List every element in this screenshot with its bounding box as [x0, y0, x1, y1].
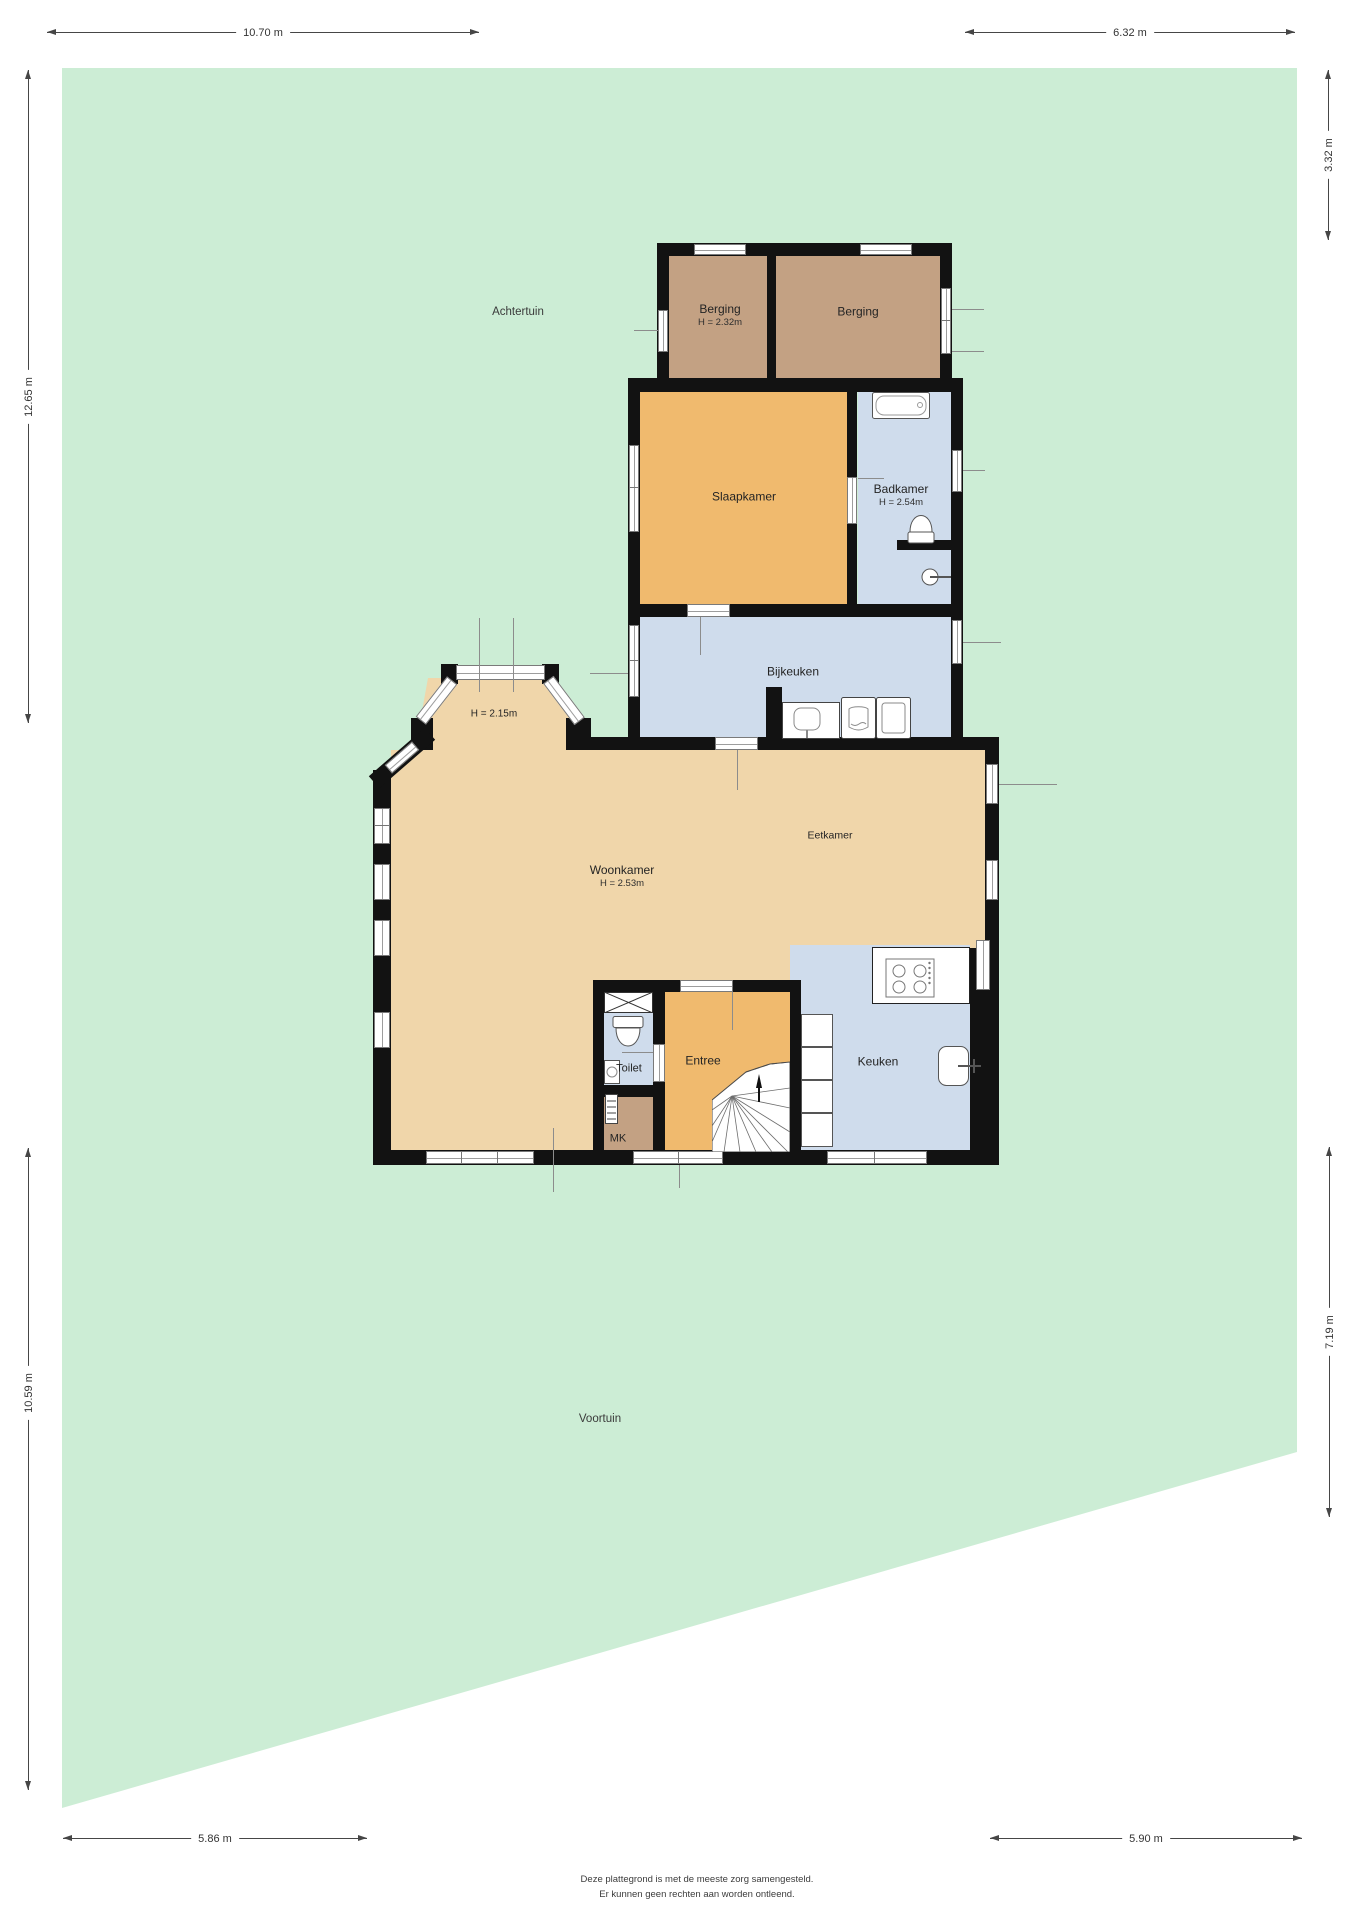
woonkamer-window: [426, 1151, 534, 1164]
room-name: MK: [610, 1133, 627, 1145]
dimension-bottom-right: 5.90 m: [990, 1838, 1302, 1839]
window-tick: [513, 618, 514, 692]
shower-icon: [918, 566, 952, 588]
erker-height-label: H = 2.15m: [471, 708, 517, 721]
window-tick: [553, 1128, 554, 1192]
room-height: H = 2.32m: [698, 316, 742, 329]
door-leaf: [732, 992, 733, 1030]
dimension-bottom-left: 5.86 m: [63, 1838, 367, 1839]
berging-window: [658, 310, 668, 352]
room-name: Slaapkamer: [712, 490, 776, 504]
keuken-window: [827, 1151, 927, 1164]
door-tick: [679, 1165, 680, 1188]
berging-door: [694, 244, 746, 255]
kitchen-cabinet: [801, 1014, 833, 1047]
bijkeuken-label: Bijkeuken: [767, 666, 819, 679]
berging-door: [860, 244, 912, 255]
woonkamer-window: [374, 808, 390, 844]
toilet-door: [653, 1044, 665, 1082]
dimension-value: 12.65 m: [23, 370, 35, 424]
floorplan-page: Achtertuin Voortuin: [0, 0, 1358, 1920]
window-mullion: [497, 1152, 498, 1163]
window-tick: [952, 351, 984, 352]
badkamer-label: Badkamer H = 2.54m: [874, 483, 929, 509]
woonkamer-label: Woonkamer H = 2.53m: [590, 864, 654, 890]
staircase: [712, 1060, 790, 1152]
woonkamer-entree-door: [680, 980, 733, 992]
scullery-sink-icon: [782, 702, 840, 739]
woonkamer-window: [374, 864, 390, 900]
backyard-label: Achtertuin: [492, 306, 544, 318]
room-name: Keuken: [858, 1055, 899, 1069]
woonkamer-window: [374, 920, 390, 956]
dimension-right-upper: 3.32 m: [1328, 70, 1329, 240]
slaapkamer-label: Slaapkamer: [712, 491, 776, 504]
window-mullion: [941, 320, 951, 321]
window-mullion: [874, 1152, 875, 1163]
berging-right-label: Berging: [837, 306, 878, 319]
door-leaf: [858, 478, 884, 479]
wall: [653, 1085, 665, 1150]
kitchen-cabinet: [801, 1047, 833, 1080]
room-height: H = 2.15m: [471, 709, 517, 720]
duct-icon: [604, 992, 653, 1013]
meter-panel-icon: [605, 1094, 618, 1124]
bijkeuken-window: [952, 620, 962, 664]
badkamer-door: [847, 477, 857, 524]
dryer-icon: [876, 697, 911, 739]
room-name: Bijkeuken: [767, 665, 819, 679]
toilet-icon: [906, 504, 936, 546]
cooktop-counter-icon: [872, 947, 970, 1004]
window-mullion: [461, 1152, 462, 1163]
toilet-label: Toilet: [616, 1063, 642, 1076]
room-name: Berging: [837, 305, 878, 319]
entree-label: Entree: [685, 1055, 720, 1068]
wall: [951, 378, 963, 618]
berging-window: [941, 288, 951, 354]
room-name: Toilet: [616, 1063, 642, 1075]
dimension-top-right: 6.32 m: [965, 32, 1295, 33]
dimension-left-upper: 12.65 m: [28, 70, 29, 723]
woonkamer-window: [374, 1012, 390, 1048]
wall: [767, 256, 776, 383]
keuken-label: Keuken: [858, 1056, 899, 1069]
meterkast-label: MK: [610, 1133, 627, 1146]
window-tick: [634, 330, 658, 331]
bay-side-post: [566, 718, 591, 750]
wall: [628, 604, 963, 617]
eetkamer-window: [986, 860, 998, 900]
window-mullion: [375, 825, 389, 826]
bay-front-window: [456, 665, 545, 680]
room-name: Eetkamer: [808, 830, 853, 842]
dimension-value: 7.19 m: [1324, 1308, 1336, 1356]
kitchen-sink-icon: [938, 1046, 982, 1086]
room-name: Woonkamer: [590, 863, 654, 877]
slaapkamer-door: [687, 604, 730, 617]
wall: [628, 378, 963, 392]
dimension-value: 6.32 m: [1106, 27, 1154, 39]
kitchen-cabinet: [801, 1080, 833, 1113]
window-tick: [963, 642, 1001, 643]
window-tick: [952, 309, 984, 310]
bathtub-icon: [872, 392, 930, 419]
bijkeuken-window: [629, 625, 639, 697]
dimension-value: 5.86 m: [191, 1833, 239, 1845]
room-height: H = 2.54m: [874, 496, 929, 509]
dimension-left-lower: 10.59 m: [28, 1148, 29, 1790]
window-tick: [590, 673, 628, 674]
room-name: Entree: [685, 1054, 720, 1068]
window-mullion: [629, 487, 639, 488]
room-height: H = 2.53m: [590, 877, 654, 890]
washing-machine-icon: [841, 697, 876, 739]
keuken-window: [976, 940, 990, 990]
door-leaf: [700, 617, 701, 655]
room-name: Berging: [699, 302, 740, 316]
disclaimer-line2: Er kunnen geen rechten aan worden ontlee…: [581, 1887, 814, 1902]
berging-left-label: Berging H = 2.32m: [698, 303, 742, 329]
kitchen-cabinet: [801, 1113, 833, 1147]
wall: [593, 980, 604, 1150]
dimension-right-lower: 7.19 m: [1329, 1147, 1330, 1517]
room-name: Badkamer: [874, 482, 929, 496]
badkamer-window: [952, 450, 962, 492]
disclaimer: Deze plattegrond is met de meeste zorg s…: [581, 1872, 814, 1902]
window-mullion: [678, 1152, 679, 1163]
dimension-value: 3.32 m: [1323, 131, 1335, 179]
wall: [790, 980, 801, 1150]
dimension-top-left: 10.70 m: [47, 32, 479, 33]
frontyard-label: Voortuin: [579, 1413, 621, 1425]
eetkamer-label: Eetkamer: [808, 830, 853, 843]
toilet-icon: [610, 1016, 646, 1060]
window-tick: [479, 618, 480, 692]
door-leaf: [737, 750, 738, 790]
disclaimer-line1: Deze plattegrond is met de meeste zorg s…: [581, 1872, 814, 1887]
window-mullion: [629, 660, 639, 661]
eetkamer-window: [986, 764, 998, 804]
dimension-value: 5.90 m: [1122, 1833, 1170, 1845]
slaapkamer-window: [629, 445, 639, 532]
dimension-value: 10.59 m: [23, 1366, 35, 1420]
window-tick: [963, 470, 985, 471]
window-tick: [999, 784, 1057, 785]
dimension-value: 10.70 m: [236, 27, 290, 39]
bijkeuken-door: [715, 737, 758, 750]
